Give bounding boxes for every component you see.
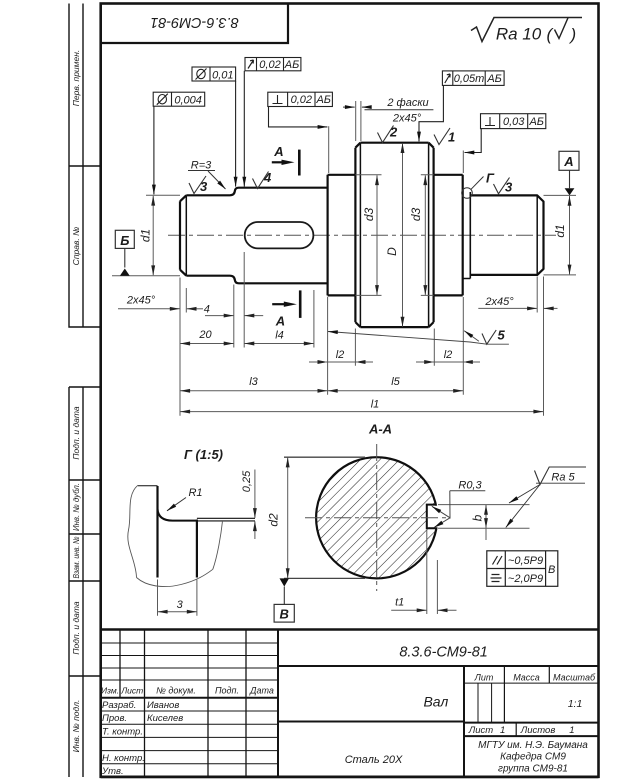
- svg-text:Ra 5: Ra 5: [551, 472, 575, 484]
- svg-text:Взам. инв. №: Взам. инв. №: [71, 537, 81, 579]
- svg-text:Ra 10: Ra 10: [496, 25, 542, 44]
- svg-text:АБ: АБ: [315, 94, 331, 106]
- svg-text:Лист: Лист: [468, 725, 494, 736]
- svg-text:Масса: Масса: [513, 673, 540, 683]
- svg-text:Сталь 20Х: Сталь 20Х: [345, 754, 403, 766]
- svg-text:Б: Б: [120, 233, 129, 248]
- svg-text:1: 1: [500, 725, 505, 736]
- svg-text:Кафедра СМ9: Кафедра СМ9: [500, 751, 566, 763]
- svg-text:Иванов: Иванов: [147, 700, 179, 711]
- svg-text:0,01: 0,01: [212, 70, 233, 82]
- svg-text:А-А: А-А: [368, 422, 392, 437]
- svg-text:): ): [569, 25, 577, 44]
- svg-text:l2: l2: [336, 349, 345, 361]
- svg-text:АБ: АБ: [486, 73, 502, 85]
- svg-text:2x45°: 2x45°: [126, 295, 156, 307]
- svg-text:~0,5P9: ~0,5P9: [508, 555, 543, 567]
- svg-text:Масштаб: Масштаб: [553, 673, 596, 683]
- svg-text:группа СМ9-81: группа СМ9-81: [498, 764, 568, 775]
- svg-text:Перв. примен.: Перв. примен.: [71, 50, 81, 107]
- svg-text:l3: l3: [249, 376, 258, 388]
- svg-text:Изм.: Изм.: [101, 686, 119, 696]
- svg-text:Разраб.: Разраб.: [102, 700, 136, 711]
- svg-text:3: 3: [505, 180, 513, 195]
- svg-text:Киселев: Киселев: [147, 713, 183, 724]
- svg-text:АБ: АБ: [284, 59, 300, 71]
- svg-text:2: 2: [389, 125, 398, 140]
- svg-text:Т. контр.: Т. контр.: [102, 726, 143, 737]
- svg-text:0,05m: 0,05m: [454, 73, 485, 85]
- svg-text:Лит: Лит: [474, 673, 494, 683]
- svg-text:0,02: 0,02: [259, 59, 280, 71]
- svg-text:В: В: [548, 564, 555, 576]
- svg-text:А: А: [275, 314, 285, 329]
- svg-text:d1: d1: [553, 224, 567, 237]
- svg-text:Г: Г: [486, 171, 495, 186]
- svg-text:Г (1:5): Г (1:5): [184, 447, 223, 462]
- svg-text:~2,0P9: ~2,0P9: [508, 573, 543, 585]
- svg-text:0,03: 0,03: [503, 116, 525, 128]
- svg-text:2 фаски: 2 фаски: [386, 97, 428, 109]
- svg-text:R0,3: R0,3: [458, 480, 482, 492]
- svg-text:8.3.6-СМ9-81: 8.3.6-СМ9-81: [399, 645, 488, 661]
- svg-text:l2: l2: [444, 349, 453, 361]
- svg-text:В: В: [280, 606, 289, 621]
- svg-text:Подп. и дата: Подп. и дата: [71, 601, 81, 654]
- svg-text:0,02: 0,02: [291, 94, 312, 106]
- svg-text:МГТУ им. Н.Э. Баумана: МГТУ им. Н.Э. Баумана: [478, 740, 588, 751]
- svg-text:Листов: Листов: [520, 725, 556, 736]
- svg-text:3: 3: [200, 179, 208, 194]
- svg-text:А: А: [563, 154, 573, 169]
- svg-text:№ докум.: № докум.: [156, 686, 196, 696]
- svg-text:Подп.: Подп.: [215, 686, 239, 696]
- svg-text:8.3.6-СМ9-81: 8.3.6-СМ9-81: [150, 14, 239, 30]
- svg-text:4: 4: [204, 303, 210, 315]
- svg-text:Лист: Лист: [120, 686, 143, 696]
- svg-text:b: b: [471, 514, 485, 521]
- svg-text:Н. контр.: Н. контр.: [102, 753, 145, 764]
- svg-text:d2: d2: [267, 513, 281, 527]
- svg-text:1:1: 1:1: [568, 698, 583, 710]
- svg-text:Пров.: Пров.: [102, 713, 127, 724]
- svg-text:D: D: [385, 247, 399, 256]
- svg-text:2x45°: 2x45°: [484, 296, 514, 308]
- svg-text:R=3: R=3: [191, 160, 212, 172]
- svg-text:l5: l5: [391, 376, 400, 388]
- svg-text:20: 20: [198, 329, 212, 341]
- svg-text:t1: t1: [395, 597, 404, 609]
- svg-text:1: 1: [448, 130, 455, 145]
- svg-text:АБ: АБ: [528, 116, 544, 128]
- svg-text:0,25: 0,25: [241, 470, 253, 492]
- svg-text:Вал: Вал: [423, 694, 448, 710]
- svg-text:А: А: [273, 144, 283, 159]
- svg-text:1: 1: [569, 725, 574, 736]
- svg-text:Утв.: Утв.: [101, 766, 124, 777]
- svg-text:5: 5: [498, 328, 506, 343]
- svg-text:4: 4: [263, 170, 272, 185]
- svg-text:Подп. и дата: Подп. и дата: [71, 406, 81, 459]
- svg-text:Инв. № дубл.: Инв. № дубл.: [71, 483, 81, 531]
- svg-text:Справ. №: Справ. №: [71, 227, 81, 266]
- svg-text:0,004: 0,004: [174, 95, 202, 107]
- svg-text:d3: d3: [409, 208, 423, 222]
- svg-text:Дата: Дата: [249, 686, 274, 696]
- svg-text:Инв. № подл.: Инв. № подл.: [71, 700, 81, 753]
- svg-text:d1: d1: [139, 229, 153, 242]
- svg-text:R1: R1: [188, 487, 202, 499]
- svg-text:2x45°: 2x45°: [392, 113, 422, 125]
- svg-text:3: 3: [177, 599, 184, 611]
- svg-text:d3: d3: [362, 208, 376, 222]
- svg-text:l4: l4: [275, 330, 284, 342]
- svg-text:l1: l1: [371, 399, 380, 411]
